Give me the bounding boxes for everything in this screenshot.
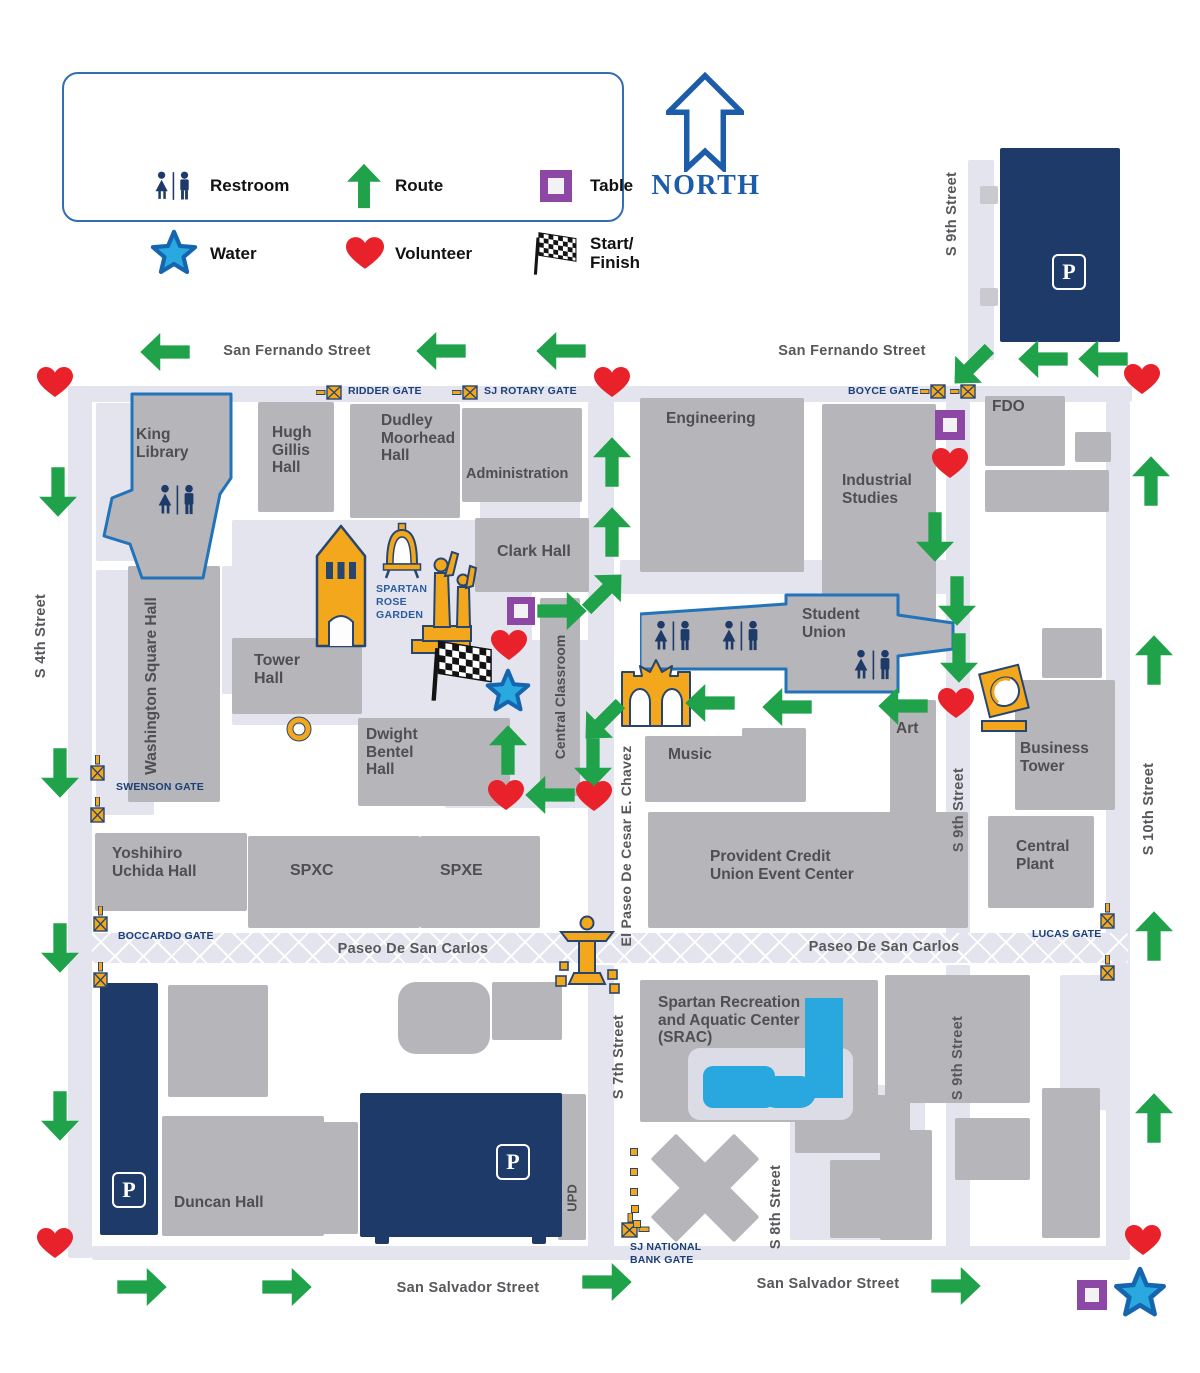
building-block: [398, 982, 490, 1054]
route-arrow: [41, 923, 79, 973]
route-arrow: [536, 332, 586, 370]
restroom-icon: [156, 484, 200, 516]
table-marker: [507, 597, 535, 625]
street-label-s-4th-street: S 4th Street: [33, 594, 49, 678]
volunteer-heart: [576, 781, 612, 813]
route-arrow: [39, 467, 77, 517]
building-block: [300, 1122, 358, 1234]
building-label-dudley-moorhead-hall: Dudley Moorhead Hall: [381, 412, 455, 465]
table-icon: [540, 170, 572, 202]
route-arrow: [685, 684, 735, 722]
building-label-industrial-studies: Industrial Studies: [842, 472, 912, 507]
route-arrow: [1135, 635, 1173, 685]
building-block: [955, 1118, 1030, 1180]
route-arrow: [489, 725, 527, 775]
building-label-central-plant: Central Plant: [1016, 838, 1069, 873]
route-arrow: [1078, 340, 1128, 378]
parking-badge: P: [112, 1172, 146, 1208]
parking-structure: [1000, 148, 1120, 342]
building-block: [980, 288, 998, 306]
volunteer-heart: [1125, 1225, 1161, 1257]
route-arrow: [938, 576, 976, 626]
walkway-path: [480, 500, 580, 520]
route-arrow: [878, 687, 928, 725]
pool-freeform: [760, 1076, 816, 1108]
landmark-ring: [286, 716, 312, 742]
gate-label-boccardo-gate: BOCCARDO GATE: [118, 930, 214, 943]
building-label-music: Music: [668, 746, 712, 764]
route-arrow: [762, 688, 812, 726]
table-marker: [1077, 1280, 1107, 1310]
gate-icon-swenson-gate: [90, 755, 105, 785]
gate-icon-boyce-gate: [920, 384, 950, 399]
route-arrow: [1018, 340, 1068, 378]
bollard-dot: [630, 1188, 638, 1196]
gate-label-boyce-gate: BOYCE GATE: [848, 385, 919, 398]
building-upd: [558, 1094, 586, 1240]
bollard-dot: [633, 1220, 641, 1228]
street-label-paseo-de-san-carlos: Paseo De San Carlos: [809, 939, 960, 955]
street-label-san-salvador-street: San Salvador Street: [757, 1276, 900, 1292]
walkway-path: [588, 965, 614, 1257]
route-arrow: [593, 507, 631, 557]
building-label-tower-hall: Tower Hall: [254, 652, 300, 688]
volunteer-heart: [1124, 364, 1160, 396]
building-washington-square-hall: [128, 566, 220, 802]
street-label-s-9th-street: S 9th Street: [951, 768, 967, 852]
route-arrow-icon: [347, 163, 381, 209]
gate-icon-boccardo-gate: [93, 906, 108, 936]
building-block: [985, 470, 1109, 512]
building-label-spxc: SPXC: [290, 862, 334, 880]
building-block: [830, 1160, 910, 1238]
parking-badge: P: [1052, 254, 1086, 290]
building-label-dwight-bentel-hall: Dwight Bentel Hall: [366, 726, 418, 779]
route-arrow: [416, 332, 466, 370]
street-label-san-salvador-street: San Salvador Street: [397, 1280, 540, 1296]
route-arrow: [525, 776, 575, 814]
gate-label-ridder-gate: RIDDER GATE: [348, 385, 422, 398]
street-label-s-8th-street: S 8th Street: [768, 1165, 784, 1249]
building-label-fdo: FDO: [992, 398, 1025, 416]
building-label-engineering: Engineering: [666, 410, 756, 428]
bollard-dot: [631, 1205, 639, 1213]
street-label-san-fernando-street: San Fernando Street: [778, 343, 926, 359]
bollard-dot: [630, 1168, 638, 1176]
bollard-dot: [630, 1148, 638, 1156]
route-arrow: [593, 437, 631, 487]
route-arrow: [916, 512, 954, 562]
building-block: [1075, 432, 1111, 462]
gate-icon-lucas-gate: [1100, 955, 1115, 985]
gate-icon-boccardo-gate: [93, 962, 108, 992]
building-label-central-classroom: Central Classroom: [552, 635, 568, 759]
route-arrow: [117, 1268, 167, 1306]
north-label: NORTH: [651, 170, 760, 202]
restroom-icon: [720, 620, 764, 652]
route-arrow: [262, 1268, 312, 1306]
building-label-student-union: Student Union: [802, 606, 860, 641]
route-arrow: [41, 1091, 79, 1141]
building-administration: [462, 408, 582, 502]
route-arrow: [1135, 911, 1173, 961]
building-label-hugh-gillis-hall: Hugh Gillis Hall: [272, 424, 312, 477]
building-label-washington-square-hall: Washington Square Hall: [143, 597, 161, 775]
restroom-icon: [153, 171, 195, 201]
building-spxc: [248, 836, 420, 928]
gate-icon-lucas-gate: [1100, 903, 1115, 933]
volunteer-heart-icon: [346, 237, 384, 271]
start-finish-flag: [426, 640, 494, 703]
building-block: [980, 186, 998, 204]
volunteer-heart: [37, 367, 73, 399]
building-label-yoshihiro-uchida-hall: Yoshihiro Uchida Hall: [112, 845, 196, 880]
building-block: [742, 728, 806, 802]
landmark-fountain: [554, 914, 620, 996]
street-label-paseo-de-san-carlos: Paseo De San Carlos: [338, 941, 489, 957]
street-label-s-9th-street: S 9th Street: [944, 172, 960, 256]
building-label-upd: UPD: [565, 1184, 580, 1211]
start-finish-flag-icon: [530, 232, 578, 276]
building-label-spartan-recreation-and-aquatic-center-srac: Spartan Recreation and Aquatic Center (S…: [658, 994, 800, 1047]
gate-label-lucas-gate: LUCAS GATE: [1032, 928, 1101, 941]
restroom-icon: [852, 649, 896, 681]
legend-label-start-finish: Start/ Finish: [590, 234, 640, 272]
street-label-s-7th-street: S 7th Street: [611, 1015, 627, 1099]
legend-label-restroom: Restroom: [210, 176, 289, 195]
gate-icon-sj-rotary-gate: [452, 385, 482, 400]
gate-label-sj-national-bank-gate: SJ NATIONAL BANK GATE: [630, 1241, 701, 1266]
building-block: [168, 985, 268, 1097]
street-label-s-10th-street: S 10th Street: [1141, 763, 1157, 856]
street-label-san-fernando-street: San Fernando Street: [223, 343, 371, 359]
building-label-clark-hall: Clark Hall: [497, 543, 571, 561]
gate-icon-swenson-gate: [90, 797, 105, 827]
building-label-spxe: SPXE: [440, 862, 483, 880]
building-label-administration: Administration: [466, 466, 568, 483]
north-arrow-icon: [666, 72, 744, 172]
water-star-icon: [149, 229, 199, 279]
building-label-king-library: King Library: [136, 426, 189, 461]
street-label-s-9th-street: S 9th Street: [950, 1016, 966, 1100]
landmark-tower: [314, 524, 368, 648]
route-arrow: [537, 592, 587, 630]
building-label-provident-credit-union-event-center: Provident Credit Union Event Center: [710, 848, 854, 883]
parking-badge: P: [496, 1144, 530, 1180]
parking-structure: [360, 1093, 562, 1237]
gate-label-swenson-gate: SWENSON GATE: [116, 781, 204, 794]
restroom-icon: [652, 620, 696, 652]
street-label-el-paseo-de-cesar-e-chavez: El Paseo De Cesar E. Chavez: [618, 745, 634, 946]
route-arrow: [140, 333, 190, 371]
volunteer-heart: [938, 688, 974, 720]
gate-icon-ridder-gate: [316, 385, 346, 400]
landmark-sculpture: [976, 653, 1032, 735]
volunteer-heart: [932, 448, 968, 480]
building-block: [1042, 628, 1102, 678]
building-label-business-tower: Business Tower: [1020, 740, 1089, 775]
legend-label-table: Table: [590, 176, 633, 195]
route-arrow: [1132, 456, 1170, 506]
building-label-duncan-hall: Duncan Hall: [174, 1194, 264, 1212]
spartan-rose-garden-label: SPARTAN ROSE GARDEN: [376, 583, 427, 622]
legend-label-route: Route: [395, 176, 443, 195]
route-arrow: [1135, 1093, 1173, 1143]
route-arrow: [41, 748, 79, 798]
volunteer-heart: [491, 630, 527, 662]
volunteer-heart: [37, 1228, 73, 1260]
gate-label-sj-rotary-gate: SJ ROTARY GATE: [484, 385, 577, 398]
route-arrow: [582, 1263, 632, 1301]
building-spxe: [420, 836, 540, 928]
legend-label-water: Water: [210, 244, 257, 263]
route-arrow: [931, 1267, 981, 1305]
route-arrow: [940, 633, 978, 683]
building-block: [492, 982, 562, 1040]
legend-label-volunteer: Volunteer: [395, 244, 472, 263]
walkway-path: [1106, 402, 1130, 1257]
building-block: [1042, 1088, 1100, 1238]
volunteer-heart: [488, 780, 524, 812]
campus-route-map: Hugh Gillis HallDudley Moorhead HallAdmi…: [0, 0, 1200, 1373]
volunteer-heart: [594, 367, 630, 399]
table-marker: [935, 410, 965, 440]
water-star: [1112, 1266, 1168, 1322]
